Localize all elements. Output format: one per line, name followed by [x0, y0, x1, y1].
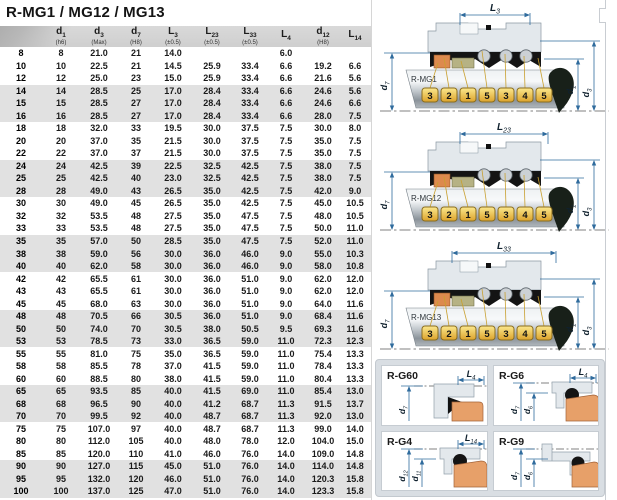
table-cell: 36.0	[192, 261, 232, 271]
table-cell: 38	[42, 249, 80, 259]
table-cell: 37.5	[232, 123, 268, 133]
svg-text:d3: d3	[581, 88, 594, 98]
table-cell: 50	[0, 324, 42, 334]
table-cell: 26.5	[154, 198, 192, 208]
panel-title: R-G4	[387, 436, 412, 448]
table-cell: 42	[42, 274, 80, 284]
table-cell: 14	[0, 86, 42, 96]
table-row: 424265.56130.036.051.09.062.012.0	[0, 272, 371, 285]
table-cell: 12.0	[342, 286, 368, 296]
table-cell: 18	[0, 123, 42, 133]
spring	[500, 288, 512, 300]
seat-part	[434, 55, 450, 68]
table-cell: 24	[42, 161, 80, 171]
table-cell: 42.5	[232, 173, 268, 183]
table-cell: 90	[118, 399, 154, 409]
table-cell: 99.5	[80, 411, 118, 421]
table-cell: 25.0	[80, 73, 118, 83]
table-cell: 32	[0, 211, 42, 221]
table-cell: 11.0	[268, 361, 304, 371]
table-cell: 14.0	[154, 48, 192, 58]
table-row: 161628.52717.028.433.46.628.07.5	[0, 110, 371, 123]
table-cell: 48	[0, 311, 42, 321]
svg-text:3: 3	[503, 91, 508, 102]
table-cell: 48.0	[304, 211, 342, 221]
svg-text:d12: d12	[397, 470, 410, 481]
table-cell: 85	[0, 449, 42, 459]
table-cell: 32.0	[80, 123, 118, 133]
table-cell: 30.5	[154, 324, 192, 334]
table-cell: 45	[42, 299, 80, 309]
table-cell: 80.4	[304, 374, 342, 384]
table-cell: 70	[0, 411, 42, 421]
svg-text:d7: d7	[379, 81, 392, 91]
table-cell: 12	[42, 73, 80, 83]
table-cell: 27	[118, 111, 154, 121]
table-cell: 6.6	[268, 111, 304, 121]
gland-housing	[428, 142, 541, 171]
table-cell: 75	[42, 424, 80, 434]
table-cell: 17.0	[154, 86, 192, 96]
table-cell: 95	[42, 474, 80, 484]
table-cell: 59.0	[80, 249, 118, 259]
table-cell: 14.8	[342, 449, 368, 459]
table-cell: 68.4	[304, 311, 342, 321]
table-cell: 93.5	[80, 386, 118, 396]
page-edge-divider	[605, 0, 606, 500]
table-cell: 7.5	[268, 198, 304, 208]
table-row: 242442.53922.532.542.57.538.07.5	[0, 160, 371, 173]
table-cell: 7.5	[268, 123, 304, 133]
table-cell: 76.0	[232, 474, 268, 484]
table-cell: 24	[0, 161, 42, 171]
table-cell: 55	[0, 349, 42, 359]
seal-cross-section: R-MG133215345L33d7d1d3	[372, 238, 617, 357]
table-cell: 69.0	[232, 386, 268, 396]
table-cell: 28.5	[80, 86, 118, 96]
seat-detail-card-r-g60: R-G60L4d7	[381, 365, 488, 426]
panel-title: R-G6	[499, 370, 524, 382]
svg-text:2: 2	[446, 329, 451, 340]
table-cell: 65	[42, 386, 80, 396]
column-header: d7(H8)	[118, 27, 154, 47]
table-cell: 11.3	[268, 424, 304, 434]
table-cell: 7.5	[342, 161, 368, 171]
table-cell: 30.0	[154, 286, 192, 296]
table-cell: 30.0	[154, 274, 192, 284]
table-cell: 10.5	[342, 211, 368, 221]
table-cell: 15	[42, 98, 80, 108]
table-cell: 36.5	[192, 349, 232, 359]
table-cell: 48.7	[192, 424, 232, 434]
table-cell: 62.0	[304, 274, 342, 284]
table-cell: 65.5	[80, 286, 118, 296]
table-cell: 137.0	[80, 486, 118, 496]
table-cell: 45	[118, 198, 154, 208]
table-cell: 22.5	[80, 61, 118, 71]
table-row: 505074.07030.538.050.59.569.311.6	[0, 322, 371, 335]
table-cell: 62.0	[80, 261, 118, 271]
table-cell: 72.3	[304, 336, 342, 346]
diagram-r-mg13: R-MG133215345L33d7d1d3	[372, 238, 617, 357]
svg-text:d6: d6	[522, 470, 535, 479]
table-cell: 7.5	[268, 148, 304, 158]
table-cell: 68.7	[232, 424, 268, 434]
table-cell: 37.0	[80, 136, 118, 146]
svg-text:1: 1	[465, 91, 471, 102]
panel-title: R-G9	[499, 436, 524, 448]
table-cell: 51.0	[232, 274, 268, 284]
table-cell: 59.0	[232, 336, 268, 346]
table-cell: 42.5	[80, 161, 118, 171]
panel-title: R-G60	[387, 370, 418, 382]
table-cell: 43	[42, 286, 80, 296]
svg-text:4: 4	[522, 329, 528, 340]
table-cell: 35.0	[192, 223, 232, 233]
svg-text:d3: d3	[581, 207, 594, 217]
spring	[520, 288, 532, 300]
table-cell: 46.0	[154, 474, 192, 484]
table-cell: 14.5	[154, 61, 192, 71]
table-cell: 13.3	[342, 361, 368, 371]
table-cell: 30	[42, 198, 80, 208]
table-cell: 40.0	[154, 386, 192, 396]
table-cell: 14.0	[268, 486, 304, 496]
table-cell: 13.0	[342, 386, 368, 396]
table-cell: 7.5	[268, 236, 304, 246]
table-cell: 47.5	[232, 223, 268, 233]
table-cell: 90	[42, 461, 80, 471]
table-cell: 6.6	[268, 73, 304, 83]
table-cell: 38.0	[192, 324, 232, 334]
table-cell: 112.0	[80, 436, 118, 446]
table-cell: 12.3	[342, 336, 368, 346]
table-cell: 35.0	[304, 148, 342, 158]
table-cell: 88.5	[80, 374, 118, 384]
table-cell: 22.5	[154, 161, 192, 171]
table-cell: 14.0	[268, 449, 304, 459]
table-cell: 30.0	[192, 148, 232, 158]
table-cell: 27.5	[154, 223, 192, 233]
table-cell: 85	[42, 449, 80, 459]
table-cell: 28.4	[192, 86, 232, 96]
diagram-r-mg1: R-MG13215345L3d7d1d3	[372, 0, 617, 119]
table-cell: 11.0	[268, 349, 304, 359]
table-cell: 36.0	[192, 299, 232, 309]
table-cell: 100	[42, 486, 80, 496]
table-cell: 9.0	[268, 261, 304, 271]
table-cell: 53	[0, 336, 42, 346]
table-cell: 51.0	[192, 474, 232, 484]
table-cell: 28.4	[192, 98, 232, 108]
table-cell: 36.0	[192, 249, 232, 259]
table-cell: 55.0	[304, 249, 342, 259]
table-cell: 21.0	[80, 48, 118, 58]
column-header: L23(±0.5)	[192, 27, 232, 47]
column-header: L14	[342, 30, 368, 44]
table-cell: 81.0	[80, 349, 118, 359]
table-cell: 8	[42, 48, 80, 58]
table-cell: 21	[118, 61, 154, 71]
table-cell: 19.2	[304, 61, 342, 71]
svg-text:L23: L23	[497, 122, 511, 135]
table-cell: 41.5	[192, 361, 232, 371]
table-row: 707099.59240.048.768.711.392.013.0	[0, 410, 371, 423]
table-cell: 15.8	[342, 474, 368, 484]
table-cell: 9.0	[342, 186, 368, 196]
table-cell: 7.5	[268, 136, 304, 146]
table-cell: 68.7	[232, 411, 268, 421]
table-cell: 25	[0, 173, 42, 183]
table-cell: 39	[118, 161, 154, 171]
svg-text:3: 3	[503, 329, 508, 340]
table-cell: 11.0	[268, 374, 304, 384]
table-cell: 37.0	[80, 148, 118, 158]
table-cell: 24.6	[304, 86, 342, 96]
svg-text:d7: d7	[379, 200, 392, 210]
table-cell: 10.5	[342, 198, 368, 208]
table-cell: 68.0	[80, 299, 118, 309]
table-cell: 42.5	[80, 173, 118, 183]
table-cell: 22	[42, 148, 80, 158]
table-row: 333353.54827.535.047.57.550.011.0	[0, 222, 371, 235]
table-cell: 10.3	[342, 249, 368, 259]
table-cell: 7.5	[342, 148, 368, 158]
table-row: 9090127.011545.051.076.014.0114.014.8	[0, 460, 371, 473]
table-row: 121225.02315.025.933.46.621.65.6	[0, 72, 371, 85]
table-cell: 48.0	[192, 436, 232, 446]
svg-text:3: 3	[427, 329, 432, 340]
table-row: 181832.03319.530.037.57.530.08.0	[0, 122, 371, 135]
svg-text:3: 3	[503, 210, 508, 221]
table-cell: 35.0	[192, 236, 232, 246]
table-cell: 33.0	[154, 336, 192, 346]
table-cell: 33	[42, 223, 80, 233]
table-cell: 90	[0, 461, 42, 471]
svg-text:d7: d7	[509, 470, 522, 479]
seat-part	[434, 293, 450, 306]
table-cell: 28.5	[80, 111, 118, 121]
face-part	[452, 296, 474, 306]
table-cell: 15.0	[154, 73, 192, 83]
table-row: 7575107.09740.048.768.711.399.014.0	[0, 422, 371, 435]
table-cell: 33.4	[232, 61, 268, 71]
table-cell: 21.5	[154, 136, 192, 146]
table-cell: 16	[42, 111, 80, 121]
table-cell: 36.0	[192, 286, 232, 296]
table-cell: 9.0	[268, 274, 304, 284]
table-cell: 48	[118, 211, 154, 221]
table-cell: 18	[42, 123, 80, 133]
table-cell: 6.6	[342, 98, 368, 108]
table-cell: 97	[118, 424, 154, 434]
table-cell: 13.3	[342, 374, 368, 384]
table-cell: 38.0	[154, 374, 192, 384]
table-cell: 99.0	[304, 424, 342, 434]
table-cell: 50.0	[304, 223, 342, 233]
table-cell: 40	[42, 261, 80, 271]
dimension-table-section: R-MG1 / MG12 / MG13 d1(h6)d3(Max)d7(H8)L…	[0, 0, 372, 500]
table-cell: 23	[118, 73, 154, 83]
table-cell: 37	[118, 148, 154, 158]
table-cell: 105	[118, 436, 154, 446]
table-cell: 30.0	[192, 123, 232, 133]
table-cell: 30.0	[304, 123, 342, 133]
table-cell: 92	[118, 411, 154, 421]
spring	[520, 169, 532, 181]
table-cell: 38	[0, 249, 42, 259]
svg-text:5: 5	[484, 91, 490, 102]
table-cell: 12.0	[268, 436, 304, 446]
table-cell: 11.6	[342, 311, 368, 321]
table-cell: 11.0	[268, 336, 304, 346]
table-cell: 9.0	[268, 286, 304, 296]
seat-detail-panels: R-G60L4d7R-G6L4d7d6R-G4L14d12d11R-G9d7d6	[375, 359, 605, 497]
table-row: 282849.04326.535.042.57.542.09.0	[0, 185, 371, 198]
table-row: 151528.52717.028.433.46.624.66.6	[0, 97, 371, 110]
table-cell: 41.5	[192, 386, 232, 396]
svg-text:3: 3	[427, 210, 432, 221]
table-row: 222237.03721.530.037.57.535.07.5	[0, 147, 371, 160]
table-cell: 40.0	[154, 436, 192, 446]
page-title: R-MG1 / MG12 / MG13	[0, 0, 371, 26]
table-cell: 13.3	[342, 349, 368, 359]
table-cell: 11.3	[268, 411, 304, 421]
table-cell: 28	[0, 186, 42, 196]
table-cell: 35.0	[192, 186, 232, 196]
table-cell: 6.6	[342, 61, 368, 71]
table-cell: 76.0	[232, 449, 268, 459]
table-cell: 41.0	[154, 449, 192, 459]
table-cell: 95	[0, 474, 42, 484]
table-cell: 35.0	[304, 136, 342, 146]
column-header: d12(H8)	[304, 27, 342, 47]
table-cell: 50	[118, 236, 154, 246]
table-cell: 53.5	[80, 211, 118, 221]
table-cell: 30.0	[154, 249, 192, 259]
spring	[500, 169, 512, 181]
table-cell: 42.5	[232, 161, 268, 171]
svg-text:5: 5	[541, 91, 547, 102]
table-cell: 49.0	[80, 186, 118, 196]
table-cell: 6.6	[268, 86, 304, 96]
svg-text:d3: d3	[581, 326, 594, 336]
table-cell: 40	[0, 261, 42, 271]
table-cell: 120.0	[80, 449, 118, 459]
svg-text:5: 5	[484, 210, 490, 221]
table-cell: 25.9	[192, 73, 232, 83]
table-cell: 30.0	[192, 136, 232, 146]
column-header: L33(±0.5)	[232, 27, 268, 47]
set-screw	[486, 144, 491, 149]
svg-text:2: 2	[446, 91, 451, 102]
table-cell: 22	[0, 148, 42, 158]
table-cell: 20	[0, 136, 42, 146]
svg-text:2: 2	[446, 210, 451, 221]
table-cell: 42	[0, 274, 42, 284]
svg-text:d6: d6	[522, 405, 535, 414]
table-cell: 11.3	[268, 399, 304, 409]
table-cell: 50.5	[232, 324, 268, 334]
table-cell: 43	[0, 286, 42, 296]
table-cell: 26.5	[154, 186, 192, 196]
table-cell: 35	[118, 136, 154, 146]
seat-detail-card-r-g6: R-G6L4d7d6	[493, 365, 600, 426]
table-cell: 45.0	[304, 198, 342, 208]
table-cell: 33.4	[232, 86, 268, 96]
svg-text:5: 5	[484, 329, 490, 340]
table-cell: 41.5	[192, 374, 232, 384]
table-cell: 53	[42, 336, 80, 346]
table-cell: 35.0	[192, 198, 232, 208]
table-cell: 75.4	[304, 349, 342, 359]
table-cell: 47.5	[232, 211, 268, 221]
table-cell: 59.0	[232, 374, 268, 384]
table-cell: 60	[0, 374, 42, 384]
table-cell: 63	[118, 299, 154, 309]
table-cell: 30.0	[154, 299, 192, 309]
diagram-label: R-MG13	[411, 313, 442, 322]
table-cell: 20	[42, 136, 80, 146]
table-cell: 7.5	[268, 186, 304, 196]
table-cell: 9.0	[268, 311, 304, 321]
seat-detail-drawing: R-G9d7d6	[494, 432, 600, 489]
table-cell: 43	[118, 186, 154, 196]
table-cell: 21.5	[154, 148, 192, 158]
table-cell: 15.8	[342, 486, 368, 496]
table-cell: 37.0	[154, 361, 192, 371]
table-cell: 9.0	[268, 299, 304, 309]
table-cell: 35	[0, 236, 42, 246]
table-row: 353557.05028.535.047.57.552.011.0	[0, 235, 371, 248]
table-cell: 7.5	[342, 173, 368, 183]
table-cell: 59.0	[232, 361, 268, 371]
table-row: 323253.54827.535.047.57.548.010.5	[0, 210, 371, 223]
table-cell: 5.6	[342, 86, 368, 96]
table-cell: 75	[0, 424, 42, 434]
table-cell: 48.7	[192, 411, 232, 421]
table-cell: 123.3	[304, 486, 342, 496]
table-cell: 46.0	[192, 449, 232, 459]
diagram-r-mg12: R-MG123215345L23d7d1d3	[372, 119, 617, 238]
svg-text:d7: d7	[397, 405, 410, 414]
seat-detail-card-r-g9: R-G9d7d6	[493, 431, 600, 492]
table-cell: 100	[0, 486, 42, 496]
table-cell: 37.5	[232, 148, 268, 158]
svg-text:1: 1	[465, 210, 471, 221]
table-cell: 38.0	[304, 161, 342, 171]
table-cell: 36.0	[192, 274, 232, 284]
table-cell: 114.0	[304, 461, 342, 471]
table-cell: 78.0	[232, 436, 268, 446]
table-cell: 17.0	[154, 111, 192, 121]
table-cell: 65.5	[80, 274, 118, 284]
table-cell: 42.0	[304, 186, 342, 196]
table-cell: 48	[42, 311, 80, 321]
table-cell: 33.4	[232, 98, 268, 108]
table-cell: 14.0	[268, 461, 304, 471]
table-cell: 42.5	[232, 198, 268, 208]
table-cell: 65	[0, 386, 42, 396]
table-cell: 10.8	[342, 261, 368, 271]
table-cell: 13.0	[342, 411, 368, 421]
table-cell: 15.0	[342, 436, 368, 446]
table-cell: 7.5	[268, 173, 304, 183]
table-cell: 120.3	[304, 474, 342, 484]
table-row: 100100137.012547.051.076.014.0123.315.8	[0, 485, 371, 498]
table-row: 8080112.010540.048.078.012.0104.015.0	[0, 435, 371, 448]
table-cell: 15	[0, 98, 42, 108]
